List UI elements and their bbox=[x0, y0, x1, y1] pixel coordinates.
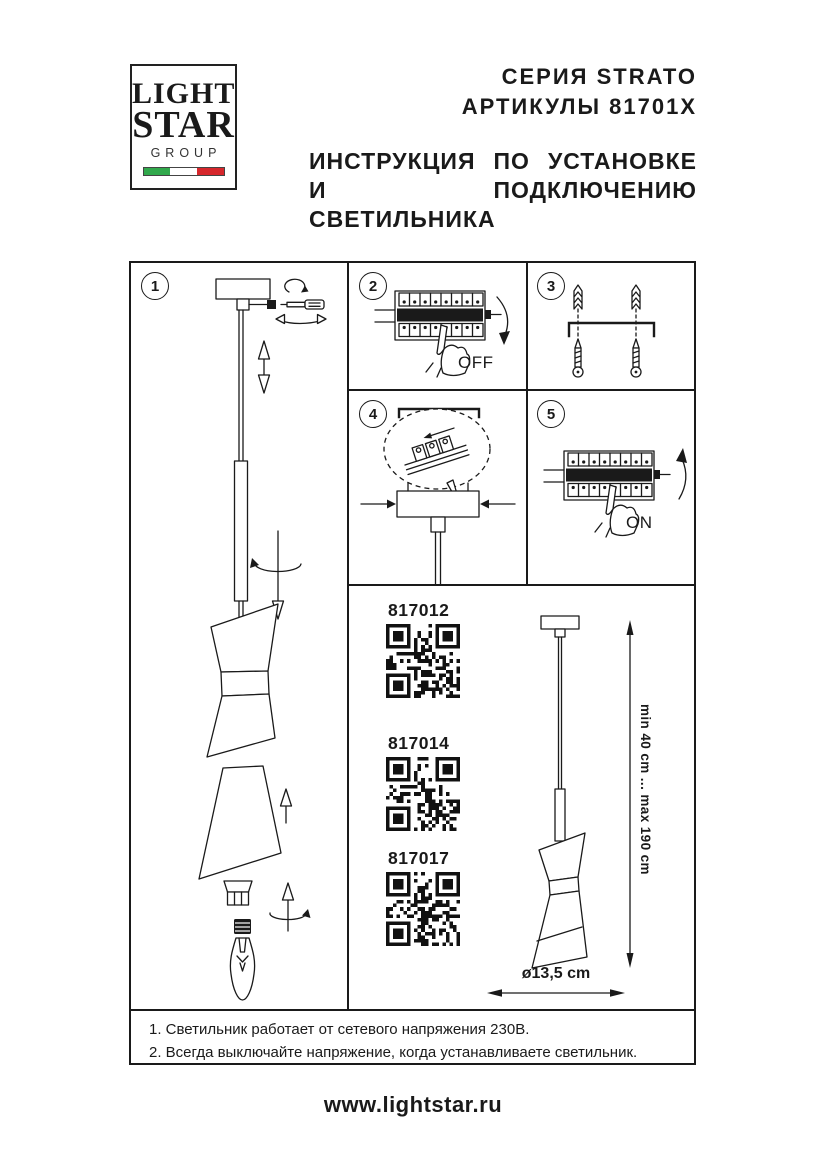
height-dimension-label: min 40 cm ... max 190 cm bbox=[638, 704, 653, 875]
curved-arrow-up-icon bbox=[676, 448, 687, 499]
instruction-title-line2: И ПОДКЛЮЧЕНИЮ СВЕТИЛЬНИКА bbox=[309, 176, 697, 234]
logo-word-star: STAR bbox=[132, 109, 235, 142]
diameter-dimension-arrow bbox=[487, 989, 625, 997]
candle-bulb-icon bbox=[230, 919, 254, 1000]
canopy-icon bbox=[397, 483, 479, 584]
note-line-1: 1. Светильник работает от сетевого напря… bbox=[149, 1019, 694, 1042]
lower-shade-drawing bbox=[199, 766, 281, 879]
installation-diagram: 1 2 3 4 5 bbox=[129, 261, 696, 1065]
instruction-sheet-page: LIGHT STAR GROUP СЕРИЯ STRATO АРТИКУЛЫ 8… bbox=[0, 0, 826, 1169]
document-header: СЕРИЯ STRATO АРТИКУЛЫ 81701X ИНСТРУКЦИЯ … bbox=[309, 62, 697, 234]
step-1-exploded-view-drawing bbox=[131, 263, 347, 1009]
mounting-bracket-icon bbox=[569, 323, 654, 336]
off-label: OFF bbox=[458, 353, 494, 373]
screw-icon bbox=[573, 339, 583, 377]
series-title: СЕРИЯ STRATO bbox=[309, 62, 697, 92]
safety-notes: 1. Светильник работает от сетевого напря… bbox=[131, 1011, 694, 1062]
rotate-up-arrow-icon bbox=[270, 883, 311, 931]
pendant-lamp-drawing bbox=[532, 616, 587, 968]
wall-anchor-icon bbox=[574, 285, 582, 309]
step-4-canopy-wiring-drawing bbox=[349, 391, 526, 584]
circuit-breaker-icon bbox=[375, 291, 501, 340]
instruction-title: ИНСТРУКЦИЯ ПО УСТАНОВКЕ И ПОДКЛЮЧЕНИЮ СВ… bbox=[309, 147, 697, 234]
flag-green-segment bbox=[144, 168, 171, 175]
step-2-breaker-off-drawing bbox=[349, 263, 526, 389]
up-arrow-icon bbox=[281, 789, 292, 823]
italian-flag-bar bbox=[143, 167, 225, 176]
curved-arrow-down-icon bbox=[497, 297, 510, 345]
flag-white-segment bbox=[170, 168, 197, 175]
flag-red-segment bbox=[197, 168, 224, 175]
height-dimension-arrow bbox=[627, 620, 634, 968]
suspension-rod-drawing bbox=[235, 310, 248, 617]
logo-word-group: GROUP bbox=[137, 146, 235, 160]
diameter-dimension-label: ø13,5 cm bbox=[497, 965, 615, 983]
step-3-mounting-drawing bbox=[528, 263, 694, 389]
up-down-arrow-icon bbox=[259, 341, 270, 393]
screwdriver-icon bbox=[276, 279, 326, 323]
website-url: www.lightstar.ru bbox=[0, 1092, 826, 1118]
ceiling-canopy-icon bbox=[216, 279, 276, 310]
step-5-breaker-on-drawing bbox=[528, 391, 694, 584]
instruction-title-line1: ИНСТРУКЦИЯ ПО УСТАНОВКЕ bbox=[309, 147, 697, 176]
lightstar-logo: LIGHT STAR GROUP bbox=[130, 64, 237, 190]
catalog-panel: 817012 817014 817017 bbox=[349, 586, 694, 1011]
socket-cover-icon bbox=[224, 881, 252, 905]
screw-icon bbox=[631, 339, 641, 377]
on-label: ON bbox=[626, 513, 653, 533]
circuit-breaker-icon bbox=[544, 451, 670, 500]
articles-title: АРТИКУЛЫ 81701X bbox=[309, 92, 697, 122]
bowtie-shade-drawing bbox=[207, 604, 278, 757]
note-line-2: 2. Всегда выключайте напряжение, когда у… bbox=[149, 1042, 694, 1065]
alignment-dashed-line bbox=[578, 309, 636, 341]
wall-anchor-icon bbox=[632, 285, 640, 309]
